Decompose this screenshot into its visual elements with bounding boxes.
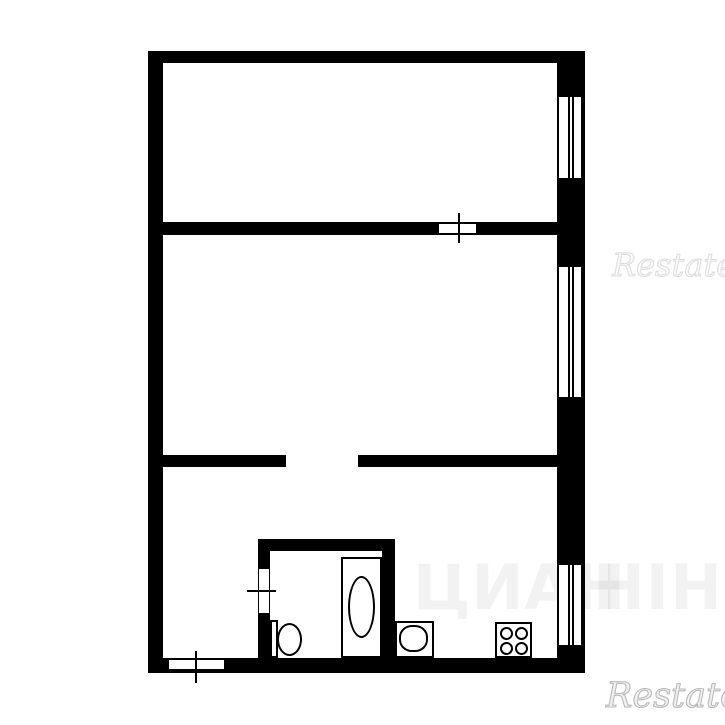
outer-wall-left [148,51,163,673]
window-pane-line [572,97,574,178]
interior-wall-upper [163,222,557,235]
toilet-bowl [277,623,302,656]
kitchen-sink-basin [399,625,428,652]
stove-burner [515,642,528,655]
floor-plan: ЦИАН НІН [0,0,725,725]
bathroom-wall-top [258,539,395,551]
opening-tick-interior-wall [458,213,460,243]
stove [495,622,532,658]
stove-burner [500,627,513,640]
window-pane-line [572,267,574,397]
window-pane-line [568,267,570,397]
interior-wall-lower-right-segment [358,455,557,467]
window-pane-line [572,565,574,645]
outer-wall-top [148,51,585,63]
restate-watermark-bottom: Restate [606,676,725,716]
window-pane-line [568,565,570,645]
window-top-room [557,97,583,178]
stove-burner [515,627,528,640]
bathroom-wall-right [382,551,395,658]
bathtub-basin-oval [348,576,375,638]
bathtub [341,557,382,658]
opening-tick-bottom-wall [195,651,197,683]
bathroom-wall-left-upper [258,551,270,568]
window-middle-room [557,267,583,397]
opening-tick-bathroom-door [247,590,276,592]
window-kitchen [557,565,583,645]
stove-burner [500,642,513,655]
center-watermark-right: НІН [593,556,723,620]
kitchen-sink [395,621,434,658]
interior-wall-lower-left-segment [163,455,286,467]
window-pane-line [568,97,570,178]
bathroom-wall-left-lower [258,614,270,658]
restate-watermark-top: Restate [612,246,725,284]
